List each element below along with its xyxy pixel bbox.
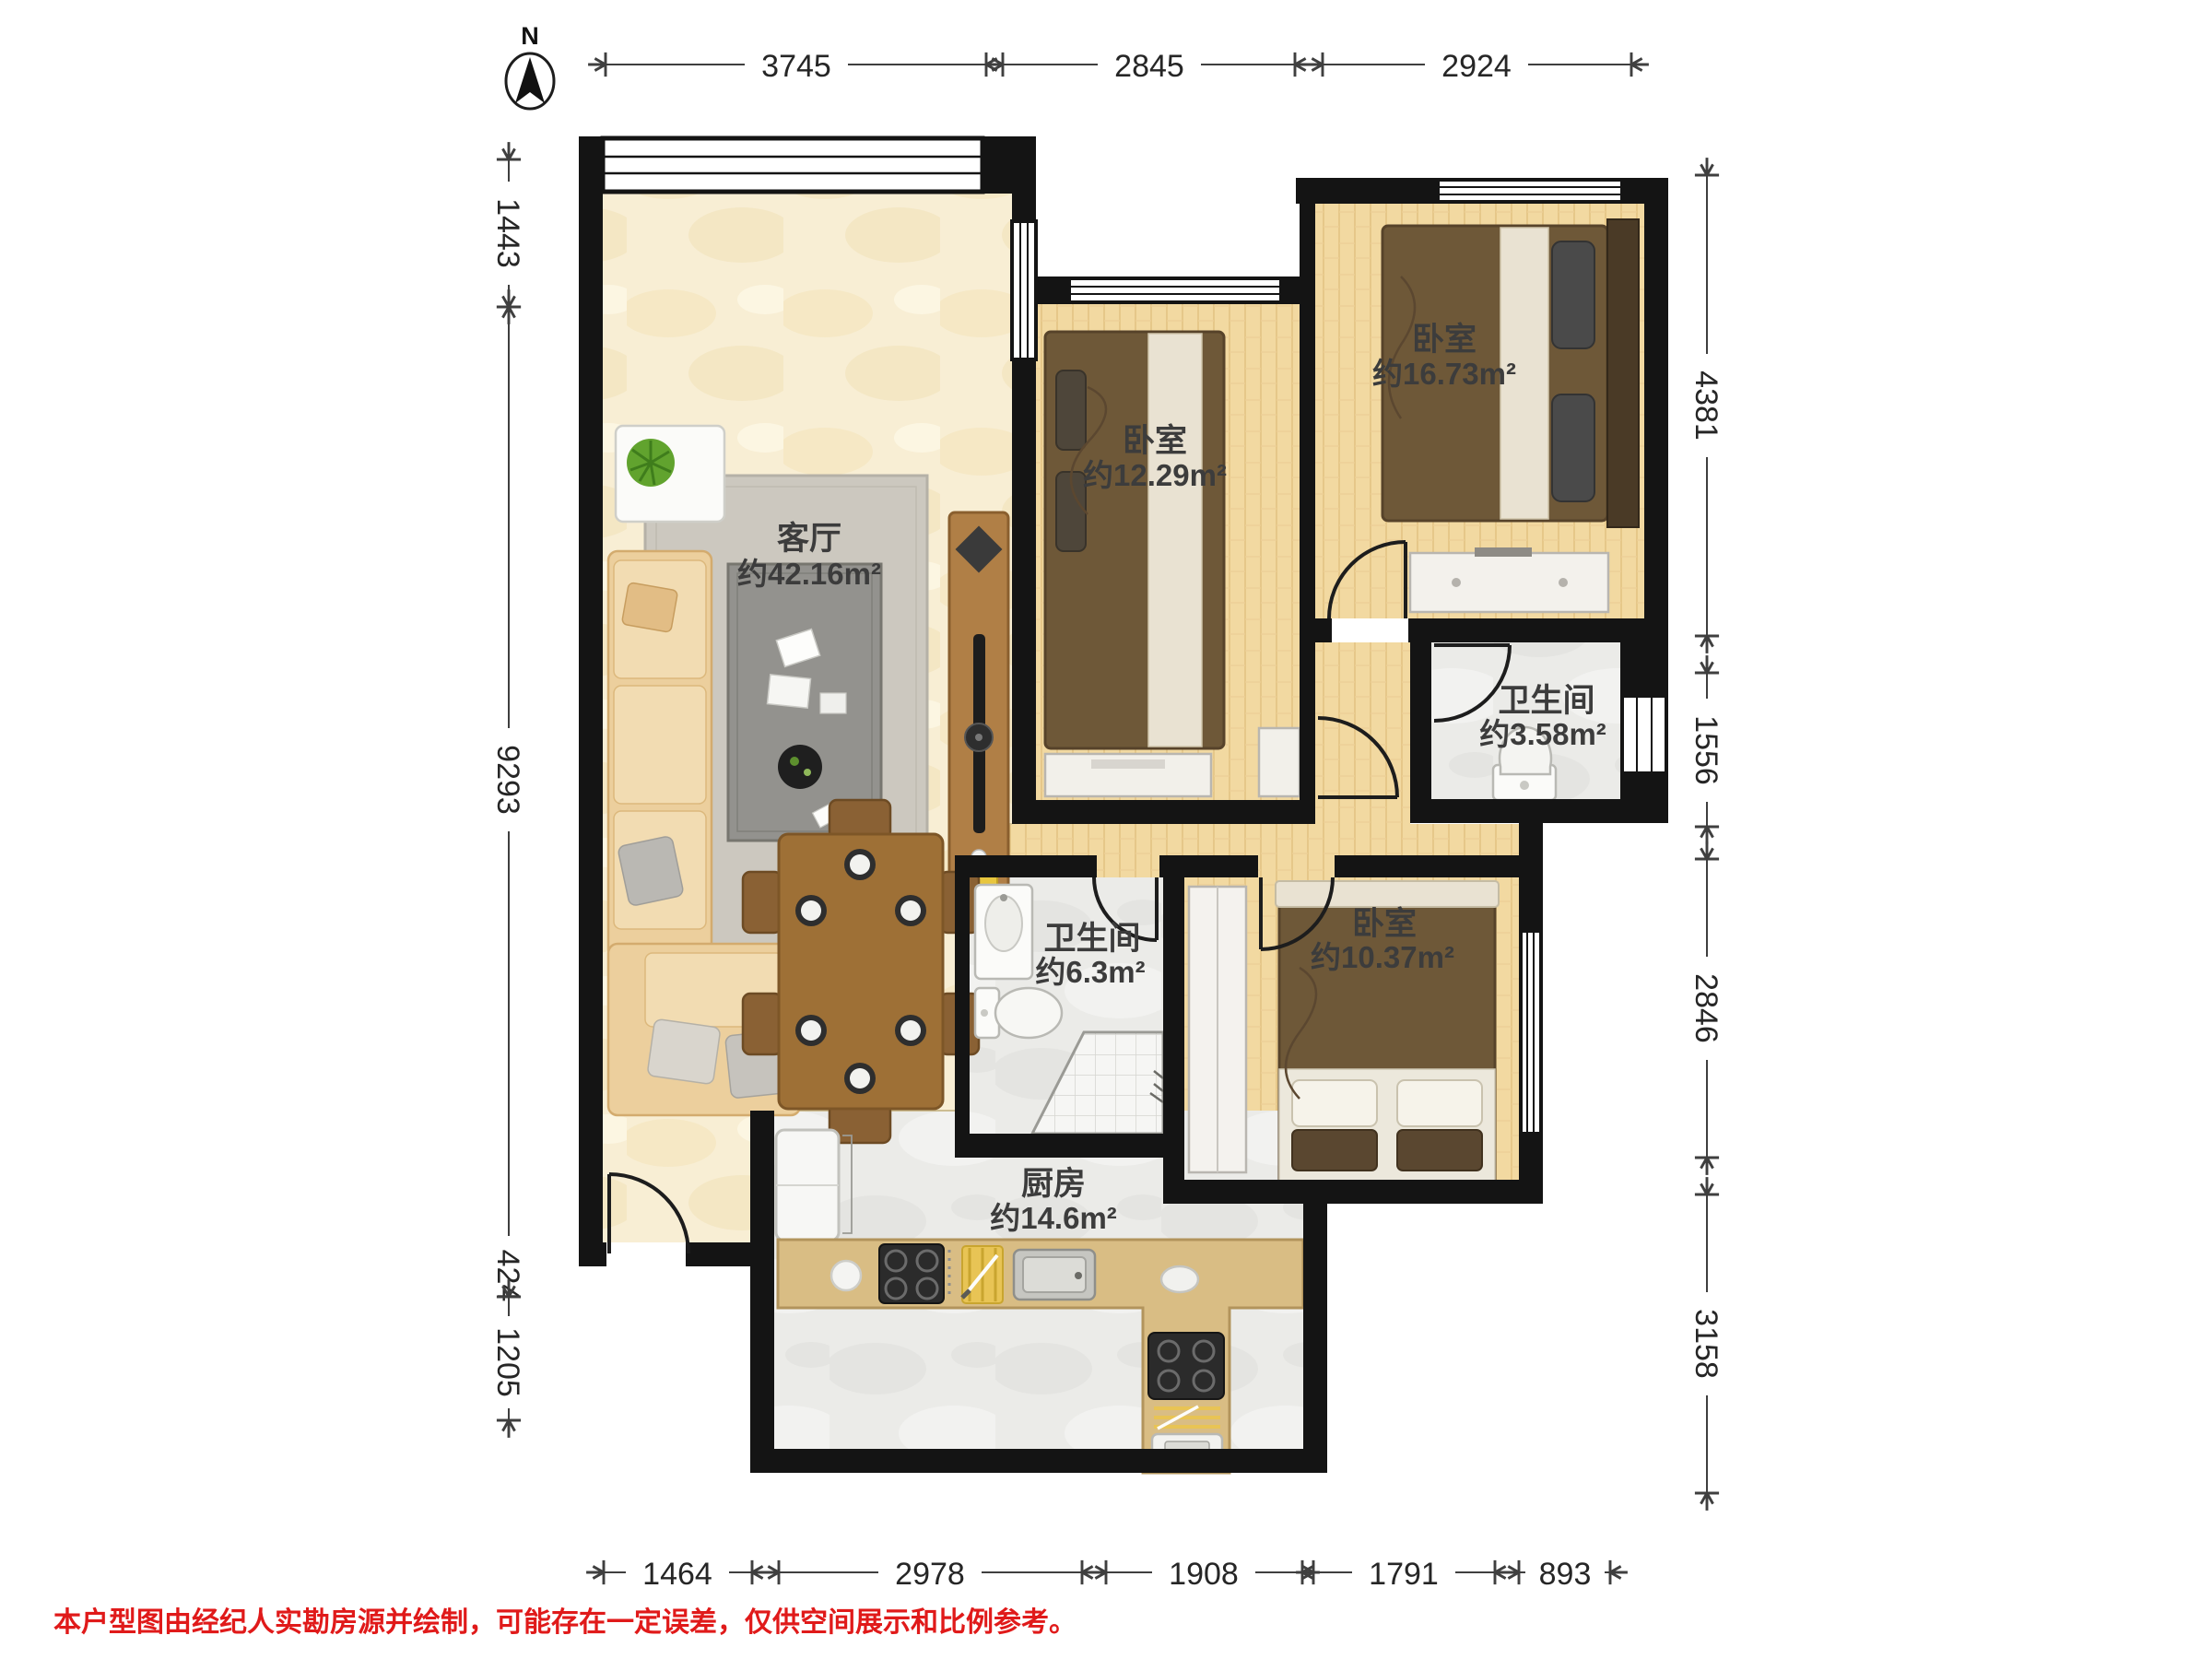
- kitchen-sink: [1014, 1250, 1095, 1300]
- bedroom-top-right-furniture: [1382, 219, 1639, 612]
- toilet-large: [975, 988, 1062, 1038]
- living-room-label: 客厅: [777, 520, 841, 557]
- dining-set: [743, 800, 979, 1143]
- dim-left-2: 9293: [490, 307, 527, 1253]
- dim-bottom-5: 893: [1519, 1554, 1610, 1592]
- side-table-plant: [616, 426, 724, 522]
- bathroom-large-area: 约6.3m²: [1035, 955, 1145, 989]
- window-living-east: [1012, 221, 1036, 359]
- window-bedroom-top-right: [1438, 180, 1622, 202]
- living-room-area: 约42.16m²: [737, 557, 881, 591]
- dim-right-3: 2846: [1688, 859, 1725, 1158]
- dim-bottom-2: 2978: [779, 1554, 1082, 1592]
- svg-text:3745: 3745: [761, 49, 831, 84]
- dim-left-1: 1443: [490, 159, 527, 307]
- nightstand-mid: [1259, 728, 1300, 796]
- dim-right-2: 1556: [1688, 673, 1725, 827]
- svg-text:2924: 2924: [1441, 49, 1512, 84]
- dresser-top-right: [1410, 553, 1608, 612]
- dim-top-2: 2845: [1003, 46, 1295, 84]
- bedroom-right-label: 卧室: [1352, 905, 1417, 942]
- svg-text:9293: 9293: [490, 745, 525, 815]
- dim-top-1: 3745: [606, 46, 986, 84]
- bedroom-mid-area: 约12.29m²: [1083, 458, 1227, 492]
- window-bedroom-right: [1521, 931, 1541, 1134]
- grill-rack: [1154, 1406, 1220, 1429]
- cutting-board: [962, 1246, 1003, 1303]
- svg-text:3158: 3158: [1688, 1309, 1724, 1379]
- window-bathroom-small: [1622, 696, 1666, 773]
- disclaimer-text: 本户型图由经纪人实勘房源并绘制，可能存在一定误差，仅供空间展示和比例参考。: [53, 1606, 1077, 1638]
- bedroom-mid-label: 卧室: [1123, 422, 1187, 459]
- bedroom-top-right-label: 卧室: [1412, 321, 1477, 358]
- dim-bottom-3: 1908: [1106, 1554, 1302, 1592]
- svg-text:1791: 1791: [1369, 1557, 1439, 1592]
- svg-text:893: 893: [1539, 1557, 1592, 1592]
- dim-bottom-1: 1464: [604, 1554, 752, 1592]
- dim-right-1: 4381: [1688, 175, 1725, 636]
- compass-north-label: N: [521, 22, 539, 50]
- bathroom-sink: [975, 885, 1032, 979]
- svg-text:2978: 2978: [895, 1557, 965, 1592]
- svg-text:1464: 1464: [642, 1557, 712, 1592]
- bedroom-right-area: 约10.37m²: [1311, 940, 1454, 974]
- svg-text:424: 424: [490, 1250, 525, 1302]
- kitchen-label: 厨房: [1021, 1166, 1086, 1202]
- bathroom-small-label: 卫生间: [1498, 683, 1594, 719]
- bathroom-small-area: 约3.58m²: [1479, 717, 1606, 751]
- cooktop-lower: [1148, 1333, 1224, 1399]
- dim-right-4: 3158: [1688, 1194, 1725, 1493]
- svg-text:2846: 2846: [1688, 973, 1724, 1043]
- dim-left-4: 1205: [490, 1297, 527, 1420]
- bathroom-large-label: 卫生间: [1043, 921, 1140, 957]
- dim-bottom-4: 1791: [1313, 1554, 1495, 1592]
- kitchen-area: 约14.6m²: [990, 1201, 1117, 1235]
- window-bedroom-mid: [1069, 278, 1281, 302]
- svg-text:2845: 2845: [1114, 49, 1184, 84]
- svg-text:1443: 1443: [490, 198, 525, 268]
- svg-text:1205: 1205: [490, 1327, 525, 1397]
- bay-window-living: [603, 138, 982, 192]
- svg-text:1908: 1908: [1169, 1557, 1239, 1592]
- stove: [879, 1244, 949, 1303]
- floor-plan-canvas: 客厅 约42.16m² 卧室 约12.29m² 卧室 约16.73m² 卫生间 …: [0, 0, 2212, 1659]
- svg-text:4381: 4381: [1688, 371, 1724, 441]
- bedroom-top-right-area: 约16.73m²: [1372, 357, 1516, 391]
- floor-plan-page: 客厅 约42.16m² 卧室 约12.29m² 卧室 约16.73m² 卫生间 …: [0, 0, 2212, 1659]
- svg-text:1556: 1556: [1688, 715, 1724, 785]
- bedroom-right-furniture: [1189, 881, 1499, 1182]
- compass: N: [506, 22, 554, 109]
- dim-top-3: 2924: [1323, 46, 1631, 84]
- corridor-floor: [1315, 642, 1410, 855]
